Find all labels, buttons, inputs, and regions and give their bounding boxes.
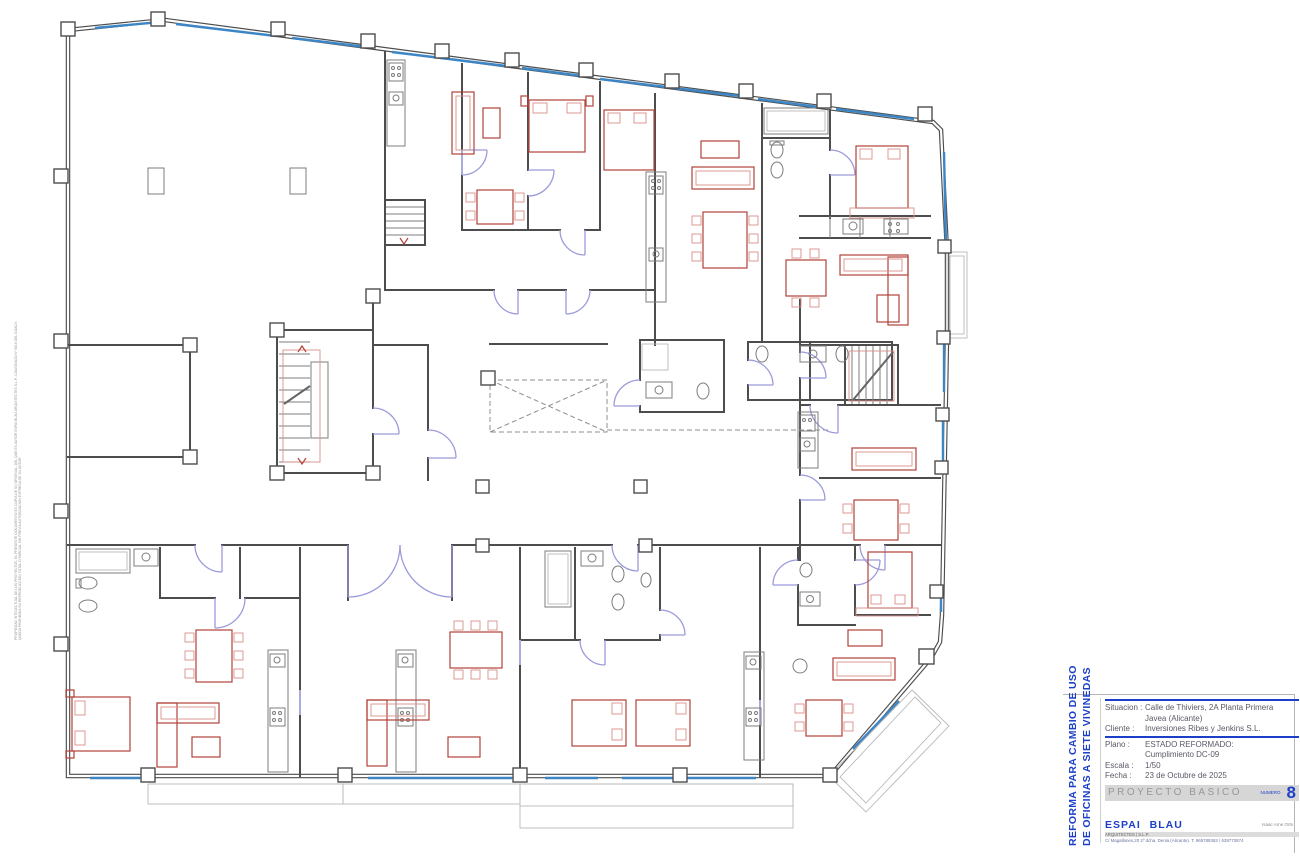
sofa	[692, 167, 754, 189]
stair-main	[279, 342, 328, 464]
dining-set	[795, 700, 853, 736]
field-escala: Escala : 1/50	[1105, 761, 1299, 772]
project-title-line1: REFORMA PARA CAMBIO DE USO	[1067, 665, 1079, 846]
dining-set	[786, 249, 826, 307]
bed	[604, 110, 654, 170]
dining-set	[843, 500, 909, 540]
field-fecha: Fecha : 23 de Octubre de 2025	[1105, 771, 1299, 782]
elevator-shaft	[481, 371, 607, 432]
project-title-line2: DE OFICINAS A SIETE VIVINEDAS	[1081, 667, 1093, 846]
field-label-spacer	[1105, 714, 1145, 725]
field-value: Calle de Thiviers, 2A Planta Primera	[1145, 703, 1299, 714]
stage-label: PROYECTO BASICO	[1108, 787, 1261, 798]
coffee-table	[192, 737, 220, 757]
bed	[521, 96, 593, 152]
coffee-table	[448, 737, 480, 757]
coffee-table	[483, 108, 500, 138]
field-plano-line2: Cumplimiento DC-09	[1105, 750, 1299, 761]
outer-walls	[68, 20, 947, 776]
project-stage-bar: PROYECTO BASICO NUMERO 8	[1105, 785, 1299, 801]
sofa	[833, 658, 895, 680]
drawing-sheet: REFORMA PARA CAMBIO DE USO DE OFICINAS A…	[0, 0, 1300, 860]
field-cliente: Cliente : Inversiones Ribes y Jenkins S.…	[1105, 724, 1299, 735]
field-situacion-line2: Javea (Alicante)	[1105, 714, 1299, 725]
field-label-spacer	[1105, 750, 1145, 761]
divider-blue	[1105, 699, 1299, 701]
sofa	[852, 448, 916, 470]
field-label: Cliente :	[1105, 724, 1145, 735]
field-label: Situacion :	[1105, 703, 1145, 714]
number-label: NUMERO	[1261, 790, 1281, 795]
field-value: 23 de Octubre de 2025	[1145, 771, 1299, 782]
dining-set	[466, 190, 524, 224]
field-label: Fecha :	[1105, 771, 1145, 782]
architect-name: Isaac Arne Orts	[1262, 822, 1293, 827]
field-value2: Javea (Alicante)	[1145, 714, 1299, 725]
bed	[572, 700, 626, 746]
side-table	[848, 630, 882, 646]
field-situacion: Situacion : Calle de Thiviers, 2A Planta…	[1105, 703, 1299, 714]
side-table	[701, 141, 739, 158]
field-label: Plano :	[1105, 740, 1145, 751]
field-value: ESTADO REFORMADO:	[1145, 740, 1299, 751]
corner-sofa	[840, 255, 908, 325]
title-block: Situacion : Calle de Thiviers, 2A Planta…	[1100, 698, 1299, 843]
dining-set	[692, 212, 758, 268]
bed	[856, 552, 918, 616]
firm-address: C/ Magallanes,20 2º dcha. Denia (Alicant…	[1105, 838, 1299, 843]
dining-set	[185, 630, 243, 682]
field-value: Inversiones Ribes y Jenkins S.L.	[1145, 724, 1299, 735]
sheet-number: 8	[1287, 785, 1296, 801]
doors	[195, 150, 885, 665]
furniture	[66, 92, 918, 767]
bed	[66, 690, 130, 758]
copyright-note: PROPIEDAD INTELECTUAL DE LOS PROYECTOS. …	[14, 321, 22, 640]
stair-right	[849, 346, 894, 404]
field-label: Escala :	[1105, 761, 1145, 772]
interior-walls	[68, 52, 940, 776]
field-value2: Cumplimiento DC-09	[1145, 750, 1299, 761]
balconies	[148, 252, 967, 828]
firm-subtitle: ARQUITECTES | S.L.P.	[1105, 832, 1299, 837]
dining-set	[450, 621, 502, 679]
bed	[850, 146, 914, 218]
field-value: 1/50	[1145, 761, 1299, 772]
bed	[636, 700, 690, 746]
stair-top	[386, 207, 424, 244]
divider-blue	[1105, 736, 1299, 738]
field-plano: Plano : ESTADO REFORMADO:	[1105, 740, 1299, 751]
copyright-line2: QUEDA PROHIBIDA SU REPRODUCCION TOTAL O …	[18, 321, 22, 640]
firm-block: ESPAI BLAU Isaac Arne Orts ARQUITECTES |…	[1105, 819, 1299, 843]
